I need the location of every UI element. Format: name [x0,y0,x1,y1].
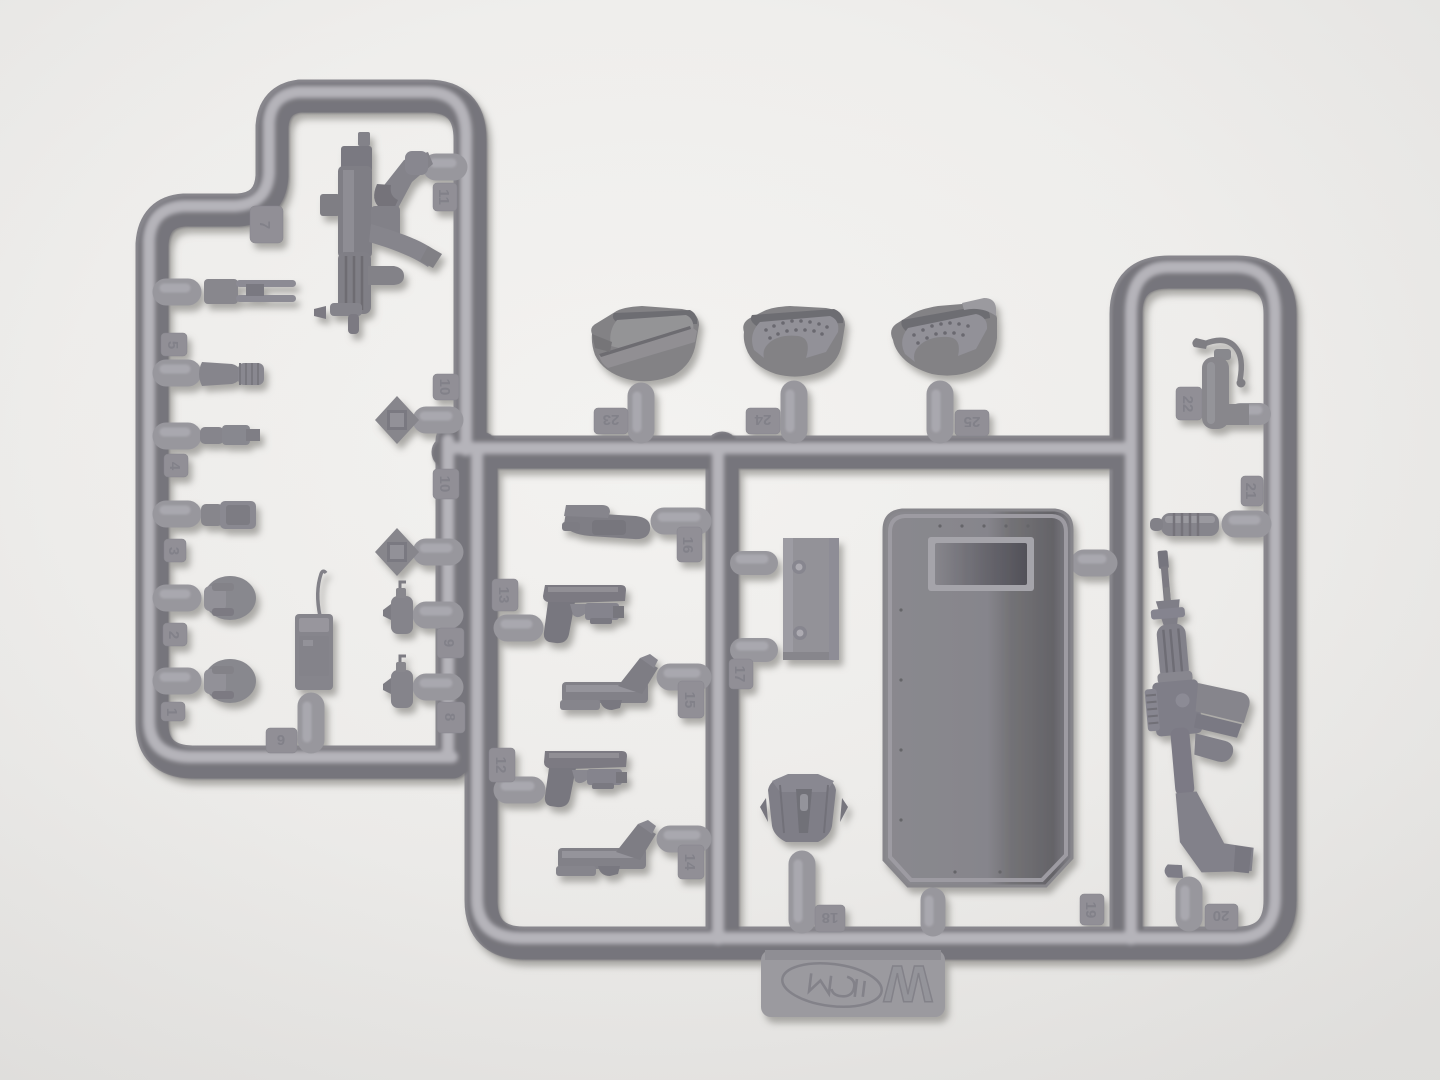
svg-text:5: 5 [164,341,181,349]
svg-text:20: 20 [1213,907,1230,924]
svg-text:1: 1 [163,708,180,716]
svg-text:10: 10 [436,379,453,396]
svg-text:21: 21 [1242,483,1259,500]
svg-text:12: 12 [492,757,509,774]
svg-text:15: 15 [681,692,698,709]
svg-text:23: 23 [603,411,620,428]
svg-text:14: 14 [681,854,698,871]
svg-text:W: W [883,954,933,1012]
svg-text:13: 13 [495,587,512,604]
svg-text:9: 9 [440,639,457,647]
svg-text:6: 6 [277,731,285,748]
svg-text:11: 11 [435,189,452,205]
svg-text:7: 7 [256,221,273,229]
svg-text:19: 19 [1082,902,1099,919]
svg-text:25: 25 [964,413,981,430]
svg-text:18: 18 [822,909,839,926]
svg-text:24: 24 [754,411,771,428]
svg-text:10: 10 [436,476,453,493]
svg-text:4: 4 [166,462,183,471]
svg-text:16: 16 [679,537,696,554]
svg-text:3: 3 [165,547,182,555]
svg-text:17: 17 [731,666,748,683]
svg-text:8: 8 [441,713,458,721]
svg-text:22: 22 [1179,396,1196,413]
svg-text:2: 2 [165,631,182,639]
